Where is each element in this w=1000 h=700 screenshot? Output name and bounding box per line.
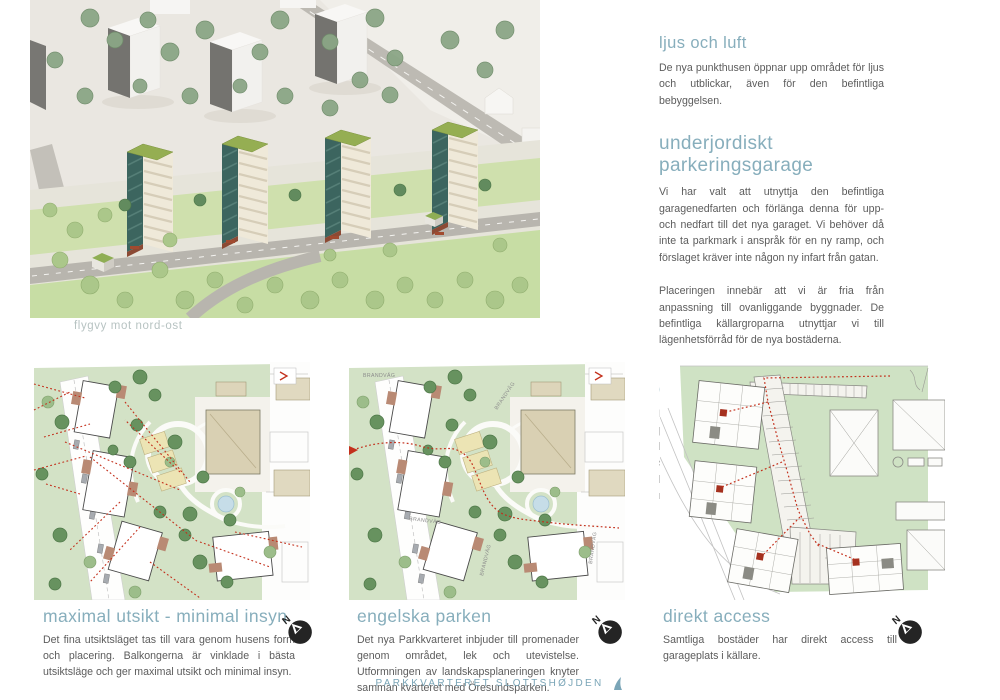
section-paragraph: Vi har valt att utnyttja den befintliga …: [659, 184, 884, 266]
plan-heading: direkt access: [663, 606, 897, 627]
presentation-board: flygvy mot nord-ost ljus och luft De nya…: [0, 0, 1000, 700]
section-paragraph: De nya punkthusen öppnar upp området för…: [659, 60, 884, 109]
section-heading: underjordiskt parkeringsgarage: [659, 133, 884, 177]
svg-text:BRANDVÄG: BRANDVÄG: [363, 372, 395, 379]
plan-body: Det fina utsiktsläget tas till vara geno…: [43, 633, 295, 681]
bird-logo-icon: [610, 676, 624, 691]
caption-utsikt: maximal utsikt - minimal insyn Det fina …: [43, 606, 295, 681]
aerial-rendering: flygvy mot nord-ost: [30, 0, 540, 318]
section-parkeringsgarage: underjordiskt parkeringsgarage Vi har va…: [659, 133, 884, 349]
plan-heading: engelska parken: [357, 606, 579, 627]
site-plan-park-image: BRANDVÄG BRANDVÄG BRANDVÄG BRANDVÄG BRAN…: [345, 362, 625, 600]
section-ljus-och-luft: ljus och luft De nya punkthusen öppnar u…: [659, 34, 884, 109]
site-plan-utsikt: [30, 362, 310, 600]
north-arrow-icon: N: [590, 612, 628, 650]
plan-body: Samtliga bostäder har direkt access till…: [663, 633, 897, 665]
garage-plan: [660, 362, 945, 600]
footer: PARKKVARTERET SLOTTSHØJDEN: [0, 676, 1000, 691]
north-arrow-icon: N: [890, 612, 928, 650]
site-plan-park: BRANDVÄG BRANDVÄG BRANDVÄG BRANDVÄG BRAN…: [345, 362, 625, 600]
north-arrow-icon: N: [280, 612, 318, 650]
plan-heading: maximal utsikt - minimal insyn: [43, 606, 295, 627]
project-brand: PARKKVARTERET SLOTTSHØJDEN: [376, 678, 604, 689]
hero-caption: flygvy mot nord-ost: [74, 320, 183, 332]
aerial-rendering-image: [30, 0, 540, 318]
site-plan-utsikt-image: [30, 362, 310, 600]
garage-plan-image: [660, 362, 945, 600]
section-heading: ljus och luft: [659, 34, 884, 53]
section-paragraph: Placeringen innebär att vi är fria från …: [659, 283, 884, 349]
caption-access: direkt access Samtliga bostäder har dire…: [663, 606, 897, 665]
